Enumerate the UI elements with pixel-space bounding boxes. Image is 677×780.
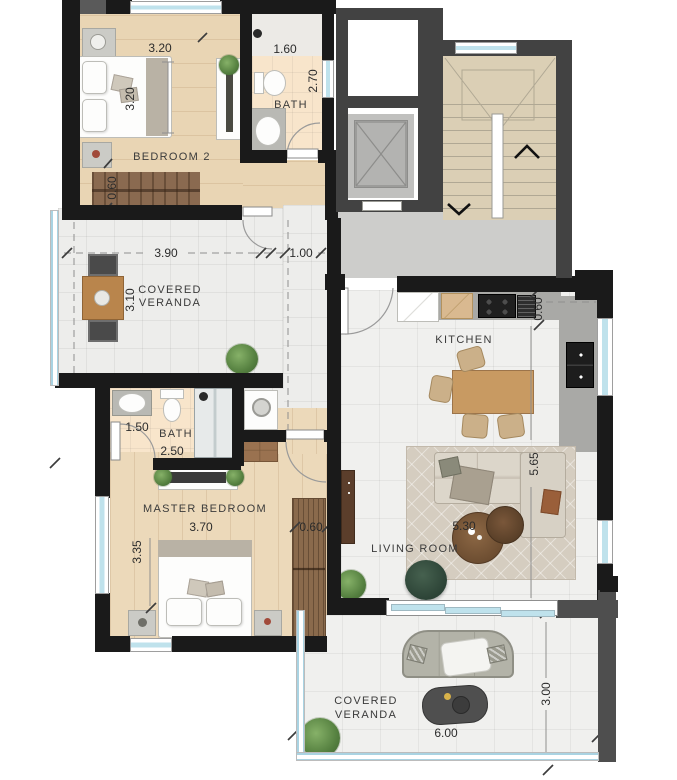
toilet-bowl [263, 70, 286, 96]
bedroom2-vestibule-floor [243, 160, 325, 210]
dim-master-depth: 3.35 [130, 540, 144, 563]
dim-veranda-left-depth: 3.10 [123, 288, 137, 311]
dim-kitchen-counter: 0.60 [531, 297, 545, 320]
common-wall [336, 8, 430, 20]
dining-chair [496, 412, 525, 439]
room-label-kitchen: KITCHEN [435, 334, 492, 346]
elevator-door [362, 201, 402, 211]
pouf [405, 560, 447, 600]
dim-hall-width: 1.00 [289, 246, 312, 260]
sliding-glass-door [386, 600, 558, 616]
glass-railing [50, 210, 59, 386]
glass-railing [296, 610, 305, 760]
toilet-bowl [163, 398, 181, 422]
dim-master-wardrobe: 0.60 [299, 520, 322, 534]
kitchen-sink [566, 342, 594, 388]
window [130, 638, 172, 652]
common-wall [336, 96, 430, 108]
pillow [206, 598, 242, 626]
room-label-bedroom2: BEDROOM 2 [133, 151, 211, 163]
wall [324, 430, 341, 442]
wall [55, 373, 283, 388]
wall [327, 598, 389, 615]
plant [154, 468, 172, 486]
outdoor-sofa-throw [440, 637, 492, 677]
bed-bedroom2-blanket [146, 58, 168, 136]
shaft-room [344, 18, 418, 98]
bed-master-blanket [158, 540, 252, 557]
sink-basin [255, 116, 281, 146]
room-label-master: MASTER BEDROOM [143, 503, 267, 515]
fridge [397, 292, 439, 322]
pillow [82, 61, 107, 94]
room-label-veranda-left-2: VERANDA [139, 297, 201, 309]
veranda-pillar-wall [598, 590, 616, 762]
wall [240, 13, 252, 163]
wall [153, 458, 241, 470]
staircase-treads [443, 104, 556, 220]
window [322, 60, 334, 98]
dim-living-width: 5.30 [452, 519, 475, 533]
outdoor-chair [88, 254, 118, 276]
dim-bath-top-width: 1.60 [273, 42, 296, 56]
tv-console [341, 470, 355, 544]
dim-bedroom2-depth: 3.20 [123, 87, 137, 110]
window [455, 42, 517, 54]
dresser-top [170, 472, 226, 483]
dining-chair [428, 374, 454, 403]
decor-item [92, 150, 100, 158]
wall [95, 593, 110, 638]
dim-veranda-left-width: 3.90 [154, 246, 177, 260]
plant [226, 468, 244, 486]
wall [80, 0, 106, 14]
dim-bedroom2-width: 3.20 [148, 41, 171, 55]
sink-basin [118, 393, 146, 413]
plant [226, 344, 258, 374]
wall [95, 636, 130, 652]
window [597, 318, 613, 396]
wall [62, 0, 80, 208]
glass-railing [296, 752, 599, 761]
common-wall [336, 8, 348, 212]
cooktop [478, 294, 516, 318]
plant [219, 55, 239, 75]
outdoor-chair [88, 320, 118, 342]
window [130, 1, 222, 14]
desk-shelf [226, 74, 233, 132]
wall [245, 150, 287, 163]
dim-veranda-bottom-width: 6.00 [434, 726, 457, 740]
pillow [166, 598, 202, 626]
room-label-veranda-bottom-1: COVERED [334, 695, 398, 707]
table-tray [452, 696, 470, 714]
dim-bath-master-a: 1.50 [125, 420, 148, 434]
decor-item [138, 618, 147, 627]
window [597, 520, 613, 564]
decor-item [264, 618, 271, 625]
wall [325, 274, 345, 290]
room-label-living: LIVING ROOM [371, 543, 459, 555]
wall [322, 0, 334, 62]
table-plate [94, 290, 110, 306]
wall [397, 276, 577, 292]
dim-master-width: 3.70 [189, 520, 212, 534]
dim-bath-master-b: 2.50 [160, 444, 183, 458]
window [95, 496, 109, 594]
wall [232, 386, 244, 466]
table-decor [477, 535, 482, 540]
floor-plan: BEDROOM 2 3.20 3.20 0.60 BATH 1.60 2.70 … [0, 0, 677, 780]
room-label-veranda-left-1: COVERED [138, 284, 202, 296]
dim-bath-top-depth: 2.70 [306, 69, 320, 92]
elevator-cab-inner [354, 120, 408, 188]
shower-head [253, 29, 262, 38]
sofa-pillow [540, 489, 561, 515]
washer-drum [252, 398, 271, 417]
room-label-bath-top: BATH [274, 99, 308, 111]
dining-chair [461, 413, 489, 439]
dim-veranda-bottom-depth: 3.00 [539, 682, 553, 705]
room-label-veranda-bottom-2: VERANDA [335, 709, 397, 721]
room-label-bath-master: BATH [159, 428, 193, 440]
wall [95, 386, 110, 498]
wall [597, 290, 613, 320]
wall [600, 576, 618, 592]
wall [232, 430, 286, 442]
dim-living-depth: 5.65 [527, 452, 541, 475]
kitchen-cabinet [441, 293, 473, 319]
lamp [90, 34, 106, 50]
common-wall [418, 8, 443, 212]
shower-head [199, 392, 208, 401]
table-decor [444, 693, 451, 700]
wall [62, 205, 242, 220]
common-wall [556, 40, 572, 278]
dim-bedroom2-rug: 0.60 [105, 176, 119, 199]
hall-corridor-floor [283, 205, 327, 433]
dining-table [452, 370, 534, 414]
coffee-table-small [486, 506, 524, 544]
wall [220, 0, 336, 14]
wall [597, 394, 613, 522]
pillow [82, 99, 107, 132]
